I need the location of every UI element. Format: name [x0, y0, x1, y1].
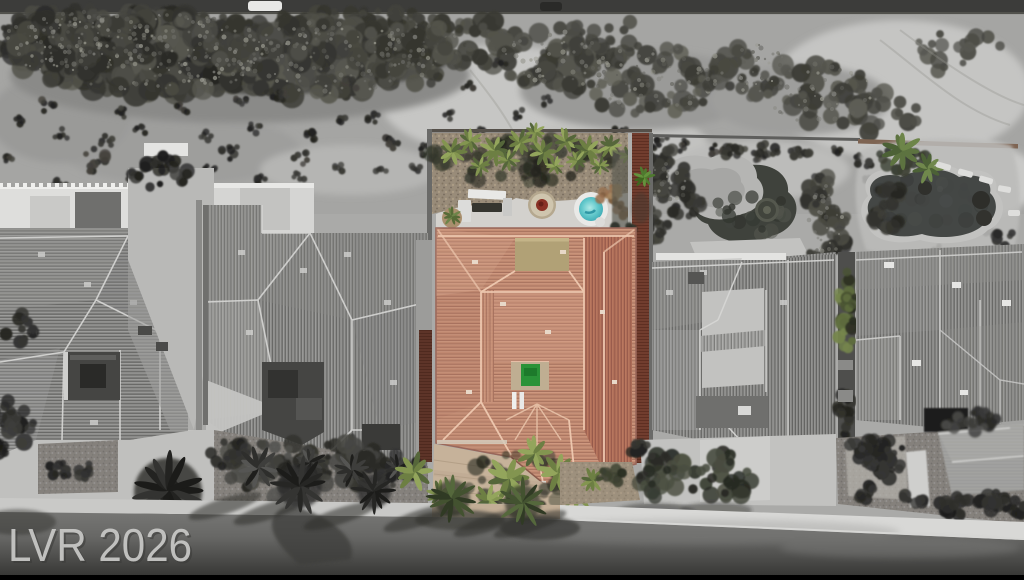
- svg-text:LVR 2026: LVR 2026: [8, 519, 192, 571]
